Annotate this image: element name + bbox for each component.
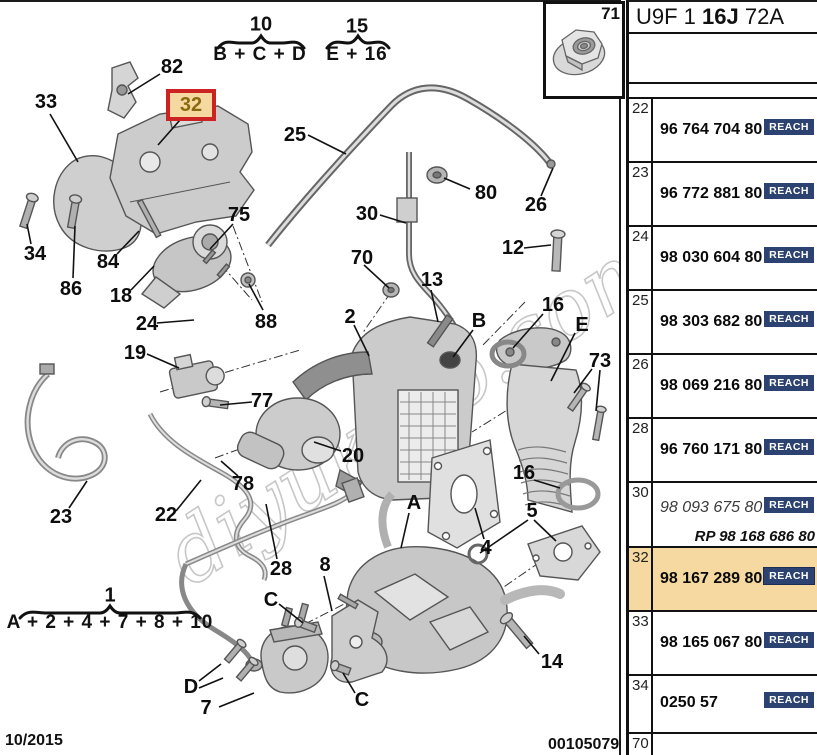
reach-badge[interactable]: REACH bbox=[764, 632, 814, 648]
parts-table: 22 96 764 704 80 REACH 23 96 772 881 80 … bbox=[629, 82, 817, 755]
part-number: 98 165 067 80 bbox=[660, 634, 762, 652]
callout-25[interactable]: 25 bbox=[284, 125, 306, 145]
callout-18[interactable]: 18 bbox=[110, 286, 132, 306]
ref-number: 26 bbox=[629, 355, 653, 417]
table-row[interactable]: 28 96 760 171 80 REACH bbox=[629, 419, 817, 483]
ref-number: 24 bbox=[629, 227, 653, 289]
exploded-diagram-drawing: diyukoto.com bbox=[0, 2, 619, 755]
ref-number: 70 bbox=[629, 734, 653, 755]
callout-22[interactable]: 22 bbox=[155, 505, 177, 525]
parts-catalog-page: diyukoto.com bbox=[0, 0, 817, 755]
reach-badge[interactable]: REACH bbox=[764, 692, 814, 708]
callout-33[interactable]: 33 bbox=[35, 92, 57, 112]
vehicle-code-header: U9F 1 16J 72A bbox=[629, 2, 817, 34]
callout-19[interactable]: 19 bbox=[124, 343, 146, 363]
ref-number: 34 bbox=[629, 676, 653, 732]
reach-badge[interactable]: REACH bbox=[764, 497, 814, 513]
ref-number: 22 bbox=[629, 99, 653, 161]
parts-list-panel: U9F 1 16J 72A 22 96 764 704 80 REACH 23 … bbox=[626, 0, 817, 755]
reach-badge[interactable]: REACH bbox=[764, 247, 814, 263]
callout-28[interactable]: 28 bbox=[270, 559, 292, 579]
callout-D[interactable]: D bbox=[184, 677, 198, 697]
callout-84[interactable]: 84 bbox=[97, 252, 119, 272]
callout-77[interactable]: 77 bbox=[251, 391, 273, 411]
callout-24[interactable]: 24 bbox=[136, 314, 158, 334]
callout-23[interactable]: 23 bbox=[50, 507, 72, 527]
ref-number: 30 bbox=[629, 483, 653, 546]
table-row[interactable]: 23 96 772 881 80 REACH bbox=[629, 163, 817, 227]
ref-number: 32 bbox=[629, 548, 653, 610]
callout-14[interactable]: 14 bbox=[541, 652, 563, 672]
part-number: 96 764 704 80 bbox=[660, 121, 762, 139]
callout-2[interactable]: 2 bbox=[344, 307, 355, 327]
table-row[interactable]: 30 98 093 675 80 REACH RP 98 168 686 80 bbox=[629, 483, 817, 548]
reach-badge[interactable]: REACH bbox=[764, 183, 814, 199]
panel-divider bbox=[619, 0, 621, 755]
reach-badge[interactable]: REACH bbox=[764, 311, 814, 327]
part-number: 98 030 604 80 bbox=[660, 249, 762, 267]
callout-4[interactable]: 4 bbox=[480, 538, 491, 558]
callout-88[interactable]: 88 bbox=[255, 312, 277, 332]
ref-number: 33 bbox=[629, 612, 653, 674]
callout-A[interactable]: A bbox=[407, 493, 421, 513]
table-row-selected[interactable]: 32 98 167 289 80 REACH bbox=[629, 548, 817, 612]
inset-ref-label: 71 bbox=[601, 4, 620, 24]
reach-badge[interactable]: REACH bbox=[764, 119, 814, 135]
part-number: 98 167 289 80 bbox=[660, 570, 762, 588]
part-number: 98 069 216 80 bbox=[660, 377, 762, 395]
table-row[interactable]: 34 0250 57 REACH bbox=[629, 676, 817, 734]
revision-date: 10/2015 bbox=[5, 732, 63, 750]
callout-5[interactable]: 5 bbox=[526, 501, 537, 521]
group-10-number: 10 bbox=[250, 14, 272, 37]
part-number-superseded: 98 093 675 80 bbox=[660, 499, 762, 517]
callout-12[interactable]: 12 bbox=[502, 238, 524, 258]
callout-7[interactable]: 7 bbox=[200, 698, 211, 718]
exploded-diagram-panel: diyukoto.com bbox=[0, 0, 619, 755]
callout-20[interactable]: 20 bbox=[342, 446, 364, 466]
callout-82[interactable]: 82 bbox=[161, 57, 183, 77]
document-number: 00105079 bbox=[548, 736, 619, 754]
callout-78[interactable]: 78 bbox=[232, 474, 254, 494]
table-row[interactable]: 25 98 303 682 80 REACH bbox=[629, 291, 817, 355]
callout-13[interactable]: 13 bbox=[421, 270, 443, 290]
ref-number: 23 bbox=[629, 163, 653, 225]
table-row[interactable]: 24 98 030 604 80 REACH bbox=[629, 227, 817, 291]
callout-32-highlighted[interactable]: 32 bbox=[166, 89, 216, 121]
callout-70[interactable]: 70 bbox=[351, 248, 373, 268]
callout-30[interactable]: 30 bbox=[356, 204, 378, 224]
part-number: 96 772 881 80 bbox=[660, 185, 762, 203]
callout-16-lower[interactable]: 16 bbox=[513, 463, 535, 483]
callout-16-upper[interactable]: 16 bbox=[542, 295, 564, 315]
callout-B[interactable]: B bbox=[472, 311, 486, 331]
ref-number: 25 bbox=[629, 291, 653, 353]
part-number: 96 760 171 80 bbox=[660, 441, 762, 459]
group-15-formula: E + 16 bbox=[326, 44, 387, 66]
table-header-row bbox=[629, 84, 817, 99]
callout-E[interactable]: E bbox=[575, 315, 588, 335]
group-10-formula: B + C + D bbox=[213, 44, 306, 66]
part-number: 0250 57 bbox=[660, 694, 718, 712]
reach-badge[interactable]: REACH bbox=[764, 568, 814, 584]
group-1-formula: A + 2 + 4 + 7 + 8 + 10 bbox=[7, 612, 214, 634]
callout-80[interactable]: 80 bbox=[475, 183, 497, 203]
callout-34[interactable]: 34 bbox=[24, 244, 46, 264]
callout-C-lower[interactable]: C bbox=[355, 690, 369, 710]
part-71-thumbnail[interactable]: 71 bbox=[543, 1, 625, 99]
table-row[interactable]: 70 bbox=[629, 734, 817, 755]
reach-badge[interactable]: REACH bbox=[764, 375, 814, 391]
replacement-part-number: RP 98 168 686 80 bbox=[695, 528, 815, 545]
callout-C-upper[interactable]: C bbox=[264, 590, 278, 610]
table-row[interactable]: 26 98 069 216 80 REACH bbox=[629, 355, 817, 419]
callout-8[interactable]: 8 bbox=[319, 555, 330, 575]
group-15-number: 15 bbox=[346, 16, 368, 39]
callout-75[interactable]: 75 bbox=[228, 205, 250, 225]
reach-badge[interactable]: REACH bbox=[764, 439, 814, 455]
callout-86[interactable]: 86 bbox=[60, 279, 82, 299]
table-row[interactable]: 33 98 165 067 80 REACH bbox=[629, 612, 817, 676]
callout-26[interactable]: 26 bbox=[525, 195, 547, 215]
part-number: 98 303 682 80 bbox=[660, 313, 762, 331]
ref-number: 28 bbox=[629, 419, 653, 481]
group-1-number: 1 bbox=[104, 585, 115, 608]
callout-73[interactable]: 73 bbox=[589, 351, 611, 371]
table-row[interactable]: 22 96 764 704 80 REACH bbox=[629, 99, 817, 163]
